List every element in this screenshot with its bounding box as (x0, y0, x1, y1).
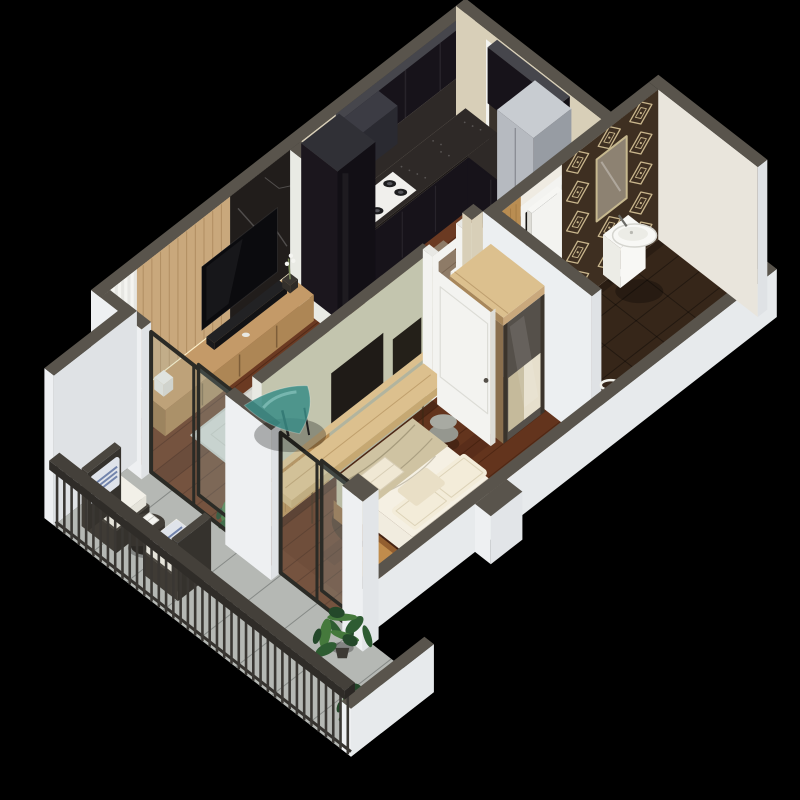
orchid-flower (289, 253, 293, 257)
orchid-flower (285, 262, 289, 266)
kitchen-tall-cabinet (301, 114, 375, 320)
plant-pot (335, 648, 349, 658)
remote (242, 333, 250, 337)
balcony-end-wall-top-side (44, 368, 54, 525)
apartment-3d-floor-plan (0, 0, 800, 800)
door-edge (491, 309, 496, 447)
bath-ne-endcap (758, 160, 768, 317)
isometric-render (0, 0, 800, 800)
sink-drain (630, 231, 633, 234)
door-handle (484, 378, 489, 383)
orchid-flower (291, 259, 295, 263)
